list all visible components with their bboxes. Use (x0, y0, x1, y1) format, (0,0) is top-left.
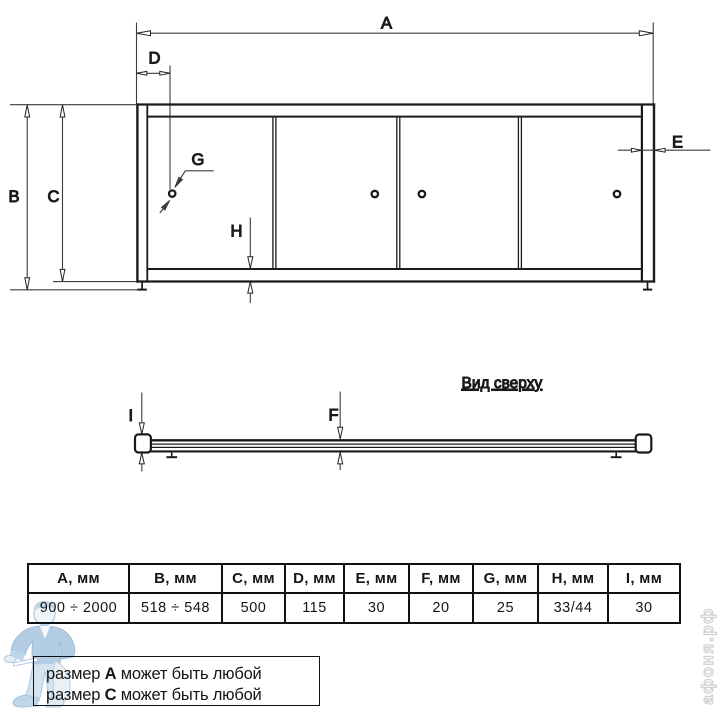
svg-text:B: B (9, 188, 20, 206)
svg-text:A: A (381, 15, 392, 33)
svg-text:D: D (149, 50, 161, 68)
svg-text:E: E (672, 134, 683, 152)
svg-text:H: H (231, 223, 243, 241)
svg-text:Вид сверху: Вид сверху (462, 375, 543, 392)
svg-text:I: I (129, 407, 134, 425)
svg-text:G: G (192, 151, 205, 169)
svg-text:C: C (48, 188, 60, 206)
svg-text:F: F (329, 407, 339, 425)
